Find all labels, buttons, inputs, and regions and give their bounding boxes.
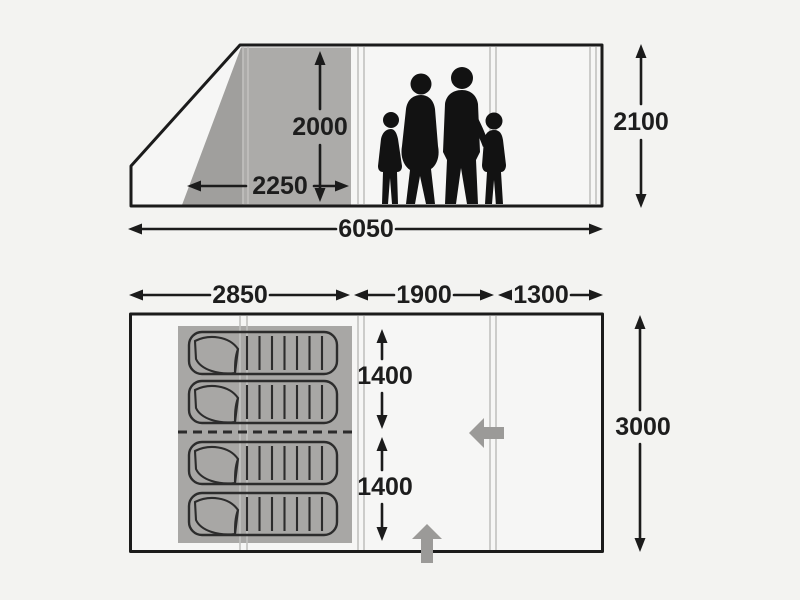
dim-porch-length: 1300 [498,281,603,309]
arrowhead-down-icon [636,194,647,208]
dim-label-bedroom-length: 2850 [212,281,268,309]
arrowhead-right-icon [589,290,603,301]
dim-living-length: 1900 [354,281,494,309]
tent-dimension-diagram: 2000 2250 6050 2100 [0,0,800,600]
boy-head [486,113,503,130]
bedroom-shaded-area [178,326,352,543]
dim-label-bedroom1-depth: 1400 [357,362,413,390]
dim-total-length: 6050 [128,215,603,243]
arrowhead-down-icon [635,538,646,552]
arrowhead-right-icon [589,224,603,235]
woman-head [411,74,432,95]
dim-label-front-depth: 2250 [252,172,308,200]
arrowhead-left-icon [498,290,512,301]
girl-head [383,112,399,128]
dim-label-total-width: 3000 [615,413,671,441]
dim-bedroom-length: 2850 [129,281,350,309]
side-view: 2000 2250 6050 2100 [128,44,669,243]
dim-total-height: 2100 [613,44,669,208]
dim-label-front-height: 2000 [292,113,348,141]
dim-label-total-height: 2100 [613,108,669,136]
man-head [451,67,473,89]
arrowhead-right-icon [336,290,350,301]
arrowhead-right-icon [480,290,494,301]
dim-label-total-length: 6050 [338,215,394,243]
floor-plan: 2850 1900 1300 [129,281,671,563]
dim-label-porch-length: 1300 [513,281,569,309]
dim-label-living-length: 1900 [396,281,452,309]
dim-total-width: 3000 [615,315,671,552]
dim-label-bedroom2-depth: 1400 [357,473,413,501]
